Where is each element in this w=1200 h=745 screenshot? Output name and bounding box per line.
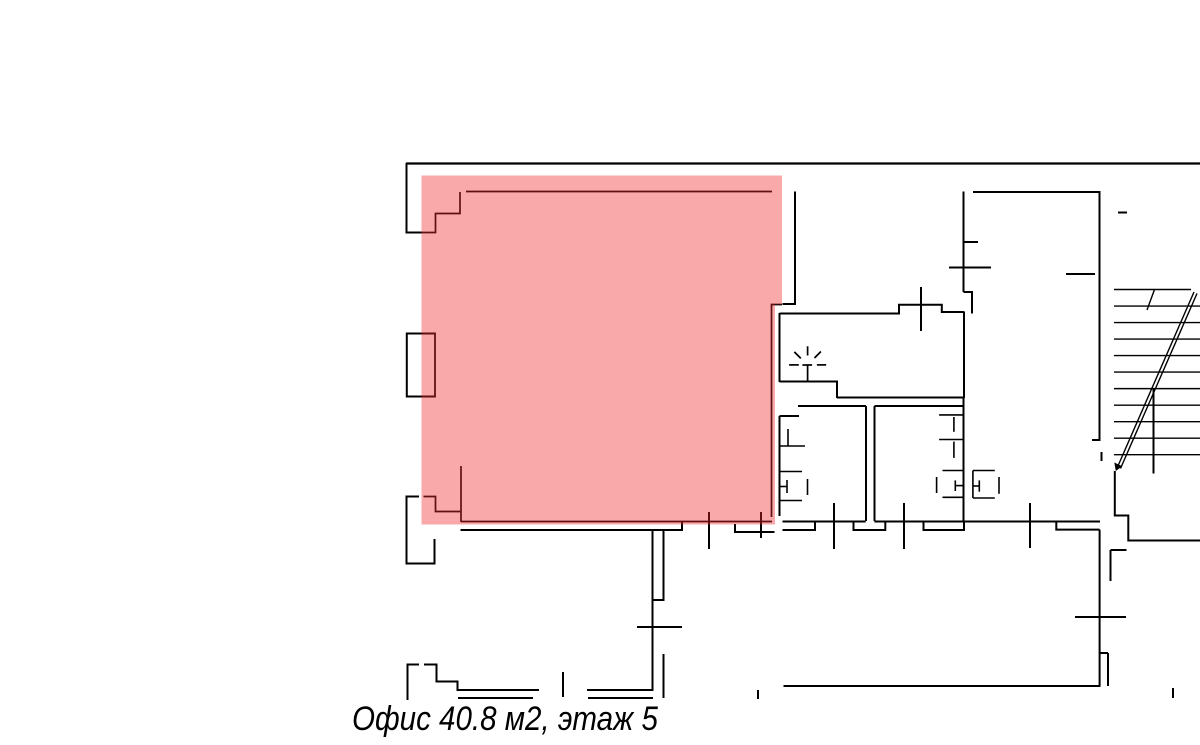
svg-text:Офис 40.8 м2, этаж 5: Офис 40.8 м2, этаж 5 [352,700,658,738]
